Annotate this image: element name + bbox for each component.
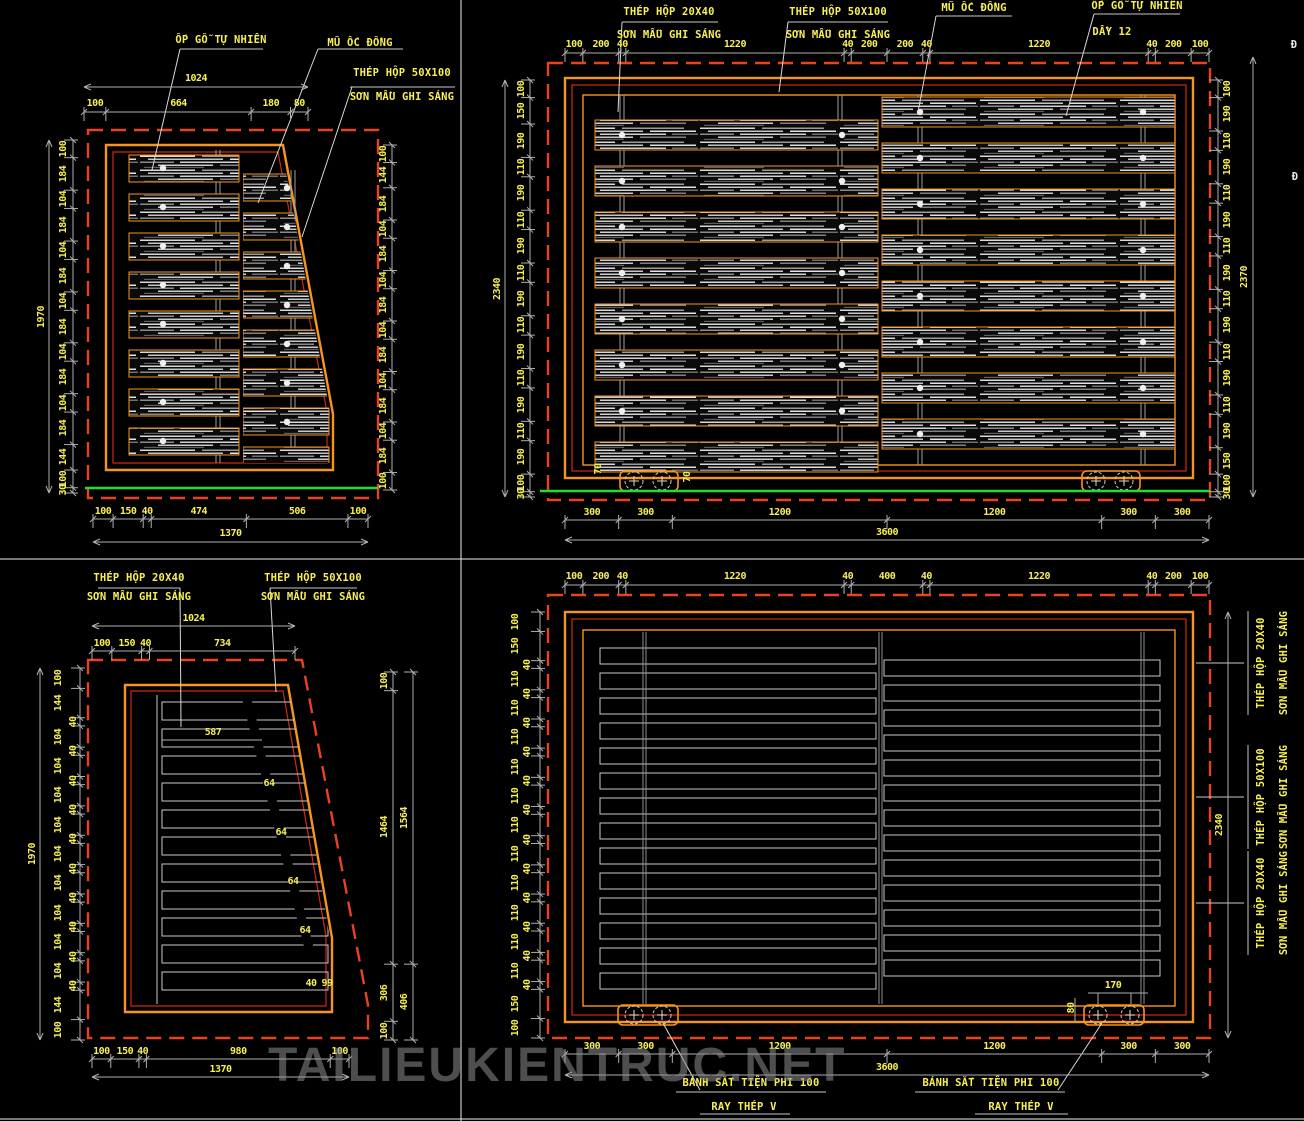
cad-drawing-canvas: ỐP GỖ TỰ NHIÊNMŨ ỐC ĐỒNGTHÉP HỘP 50X100S… bbox=[0, 0, 1304, 1121]
watermark: TAILIEUKIENTRUC.NET bbox=[268, 1042, 846, 1090]
drawing-linework bbox=[0, 0, 1304, 1121]
